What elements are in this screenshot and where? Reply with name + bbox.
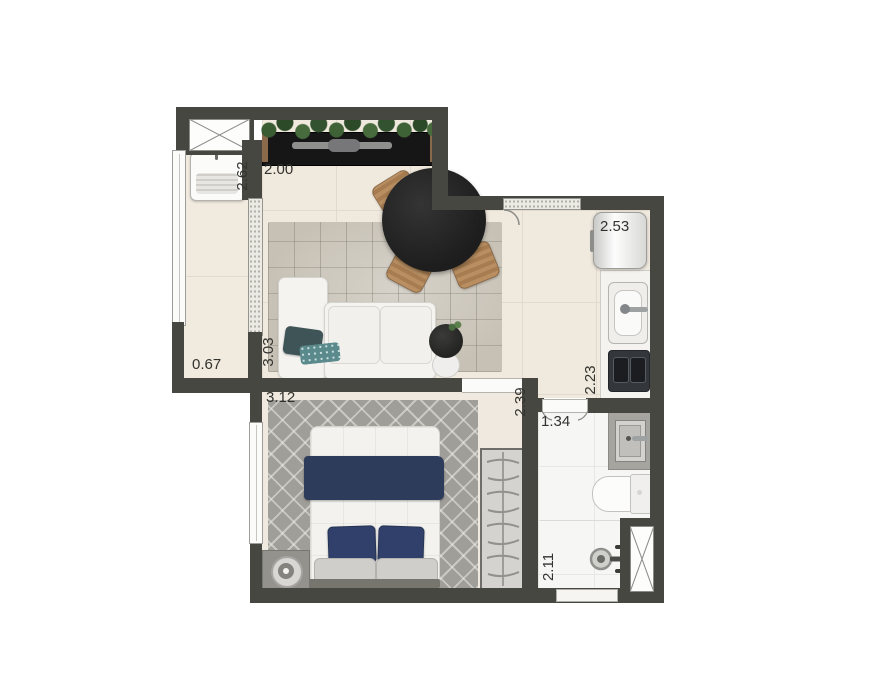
kitchen-faucet-base	[620, 304, 630, 314]
dimension-label-bath-depth: 2.11	[541, 547, 557, 587]
cooktop-burner	[613, 357, 629, 383]
dimension-label-kitchen-width: 2.53	[600, 219, 629, 235]
dimension-label-laundry: 2.62	[235, 156, 251, 196]
dimension-label-living-depth: 3.03	[261, 332, 277, 372]
wall	[254, 107, 438, 120]
wall	[172, 322, 184, 382]
wall	[432, 107, 448, 210]
dimension-label-kitchen-depth: 2.23	[583, 360, 599, 400]
wall	[172, 378, 262, 393]
vanity-faucet-icon	[632, 436, 648, 441]
vanity-drain	[626, 436, 631, 441]
cooktop-burner	[630, 357, 646, 383]
laundry-tank-washboard	[196, 173, 238, 194]
wall	[586, 398, 650, 413]
bedroom-window	[249, 422, 263, 544]
toilet-bowl	[592, 476, 634, 512]
table-lamp-bulb	[283, 568, 289, 574]
balcony-rail-window	[172, 150, 186, 326]
refrigerator-handle	[590, 230, 594, 252]
floor-plan: 2.62 2.00 0.67 3.03 3.12 2.39 1.34 2.53 …	[0, 0, 896, 691]
plant-icon	[448, 320, 462, 332]
wardrobe	[480, 448, 527, 590]
vent-shaft-icon	[630, 526, 654, 592]
hanger-icons	[482, 450, 525, 588]
dimension-label-bedroom-width: 3.12	[266, 390, 295, 406]
headboard	[308, 579, 440, 588]
vanity-basin	[619, 425, 641, 457]
dimension-label-living-width: 2.00	[264, 162, 293, 178]
bed-blanket	[304, 456, 444, 500]
balcony-sliding-door	[248, 198, 263, 336]
vent-shaft-icon	[189, 119, 250, 151]
dimension-label-bath-width: 1.34	[541, 414, 570, 430]
dimension-label-service-width: 0.67	[192, 357, 221, 373]
sofa-cushion	[380, 306, 432, 364]
bathroom-window	[556, 589, 618, 602]
dimension-label-bedroom-depth: 2.39	[513, 382, 529, 422]
entry-door-swing	[501, 209, 523, 229]
toilet-button	[637, 490, 642, 495]
